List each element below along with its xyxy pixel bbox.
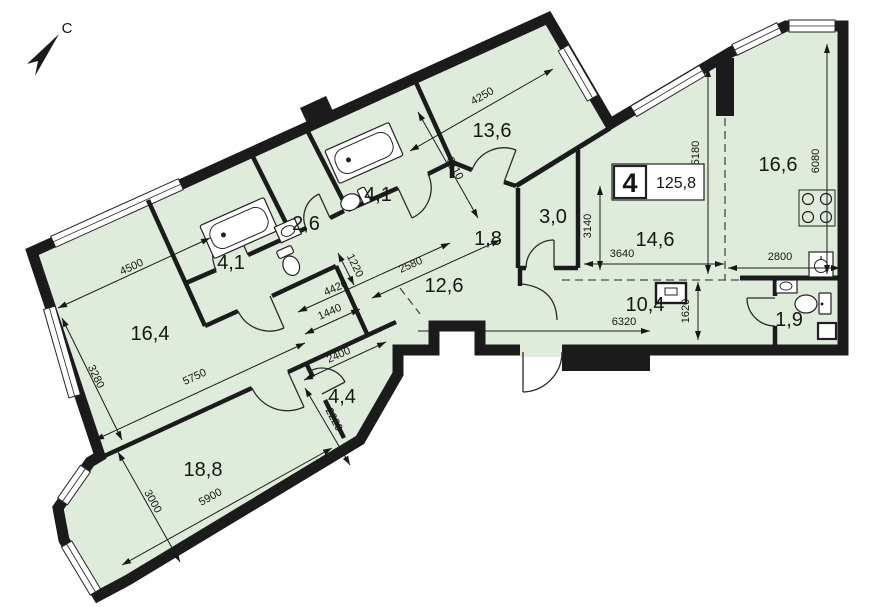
dimension-label: 6080 [810,149,822,173]
north-label: С [62,20,73,37]
room-area-label: 16,6 [759,154,798,176]
dimension-label: 3640 [610,248,634,260]
room-area-label: 1,8 [474,228,502,250]
column [716,58,734,116]
dimension-label: 1620 [680,299,692,323]
room-area-label: 1,9 [775,309,803,331]
room-area-label: 10,4 [626,294,665,316]
floorplan-canvas: 4250 3110 4500 3280 5750 3000 5900 2400 … [0,0,871,607]
room-area-label: 2,6 [292,213,320,235]
room-area-label: 12,6 [425,275,464,297]
dimension-label: 3140 [582,214,594,238]
room-area-label: 4,1 [364,184,392,206]
north-indicator: С [27,20,73,76]
room-area-label: 18,8 [184,459,223,481]
duct-box [818,323,836,339]
wall-step [562,345,650,371]
dimension-label: 6320 [612,316,636,328]
floor-plan: 4250 3110 4500 3280 5750 3000 5900 2400 … [0,0,871,607]
room-area-label: 4,4 [328,386,356,408]
sink-icon [776,280,797,293]
north-arrow-icon [27,34,59,76]
entry-door-arc [523,352,562,392]
room-area-label: 3,0 [539,206,567,228]
dimension-label: 2800 [768,251,792,263]
room-area-label: 14,6 [636,229,675,251]
entry-opening [520,343,562,357]
unit-badge: 4 125,8 [612,164,704,200]
kitchen-sink-icon [809,252,833,277]
window [789,20,835,32]
room-area-label: 16,4 [131,323,170,345]
room-area-label: 4,1 [217,252,245,274]
total-area: 125,8 [656,175,696,192]
room-count: 4 [622,168,637,198]
dimension-label: 5180 [690,141,702,165]
room-area-label: 13,6 [473,120,512,142]
